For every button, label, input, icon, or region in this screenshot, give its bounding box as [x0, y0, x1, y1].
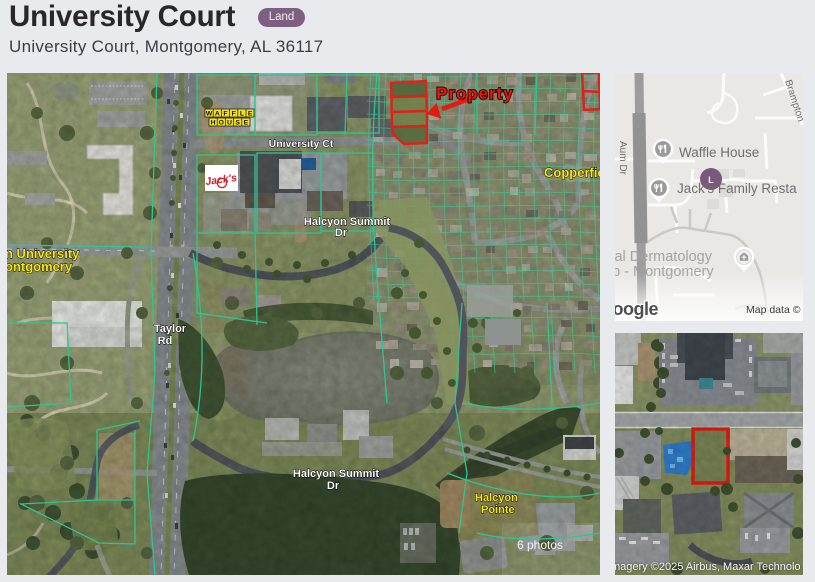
svg-text:Jack's Family Resta: Jack's Family Resta: [677, 181, 797, 196]
svg-text:O: O: [219, 120, 224, 127]
svg-text:Map data ©: Map data ©: [746, 304, 801, 316]
svg-text:Aum Dr: Aum Dr: [617, 141, 628, 176]
svg-text:Waffle House: Waffle House: [679, 145, 759, 160]
svg-text:F: F: [223, 111, 227, 118]
svg-text:magery ©2025 Airbus, Maxar Tec: magery ©2025 Airbus, Maxar Technolo: [615, 561, 801, 573]
svg-text:Taylor: Taylor: [154, 323, 187, 335]
svg-text:Dr: Dr: [335, 227, 348, 239]
svg-text:Halcyon: Halcyon: [475, 492, 518, 504]
svg-text:U: U: [227, 120, 232, 127]
svg-text:L: L: [240, 111, 244, 118]
svg-text:A: A: [215, 111, 220, 118]
svg-text:ontgomery: ontgomery: [7, 259, 73, 274]
svg-text:Dr: Dr: [327, 480, 340, 492]
svg-text:W: W: [206, 111, 213, 118]
svg-text:F: F: [232, 111, 236, 118]
svg-text:Halcyon Summit: Halcyon Summit: [293, 468, 380, 480]
svg-text:Google: Google: [615, 299, 658, 319]
svg-text:Rd: Rd: [158, 335, 173, 347]
svg-text:ical Dermatology: ical Dermatology: [615, 249, 713, 265]
svg-text:E: E: [244, 120, 249, 127]
svg-text:S: S: [235, 120, 240, 127]
svg-text:Property: Property: [436, 85, 513, 103]
svg-text:Copperfield: Copperfield: [544, 165, 600, 180]
svg-text:Pointe: Pointe: [481, 504, 515, 516]
svg-text:University Ct: University Ct: [269, 138, 334, 150]
svg-text:Halcyon Summit: Halcyon Summit: [304, 216, 391, 228]
svg-text:H: H: [211, 120, 216, 127]
svg-text:E: E: [248, 111, 253, 118]
svg-text:6 photos: 6 photos: [517, 538, 563, 552]
